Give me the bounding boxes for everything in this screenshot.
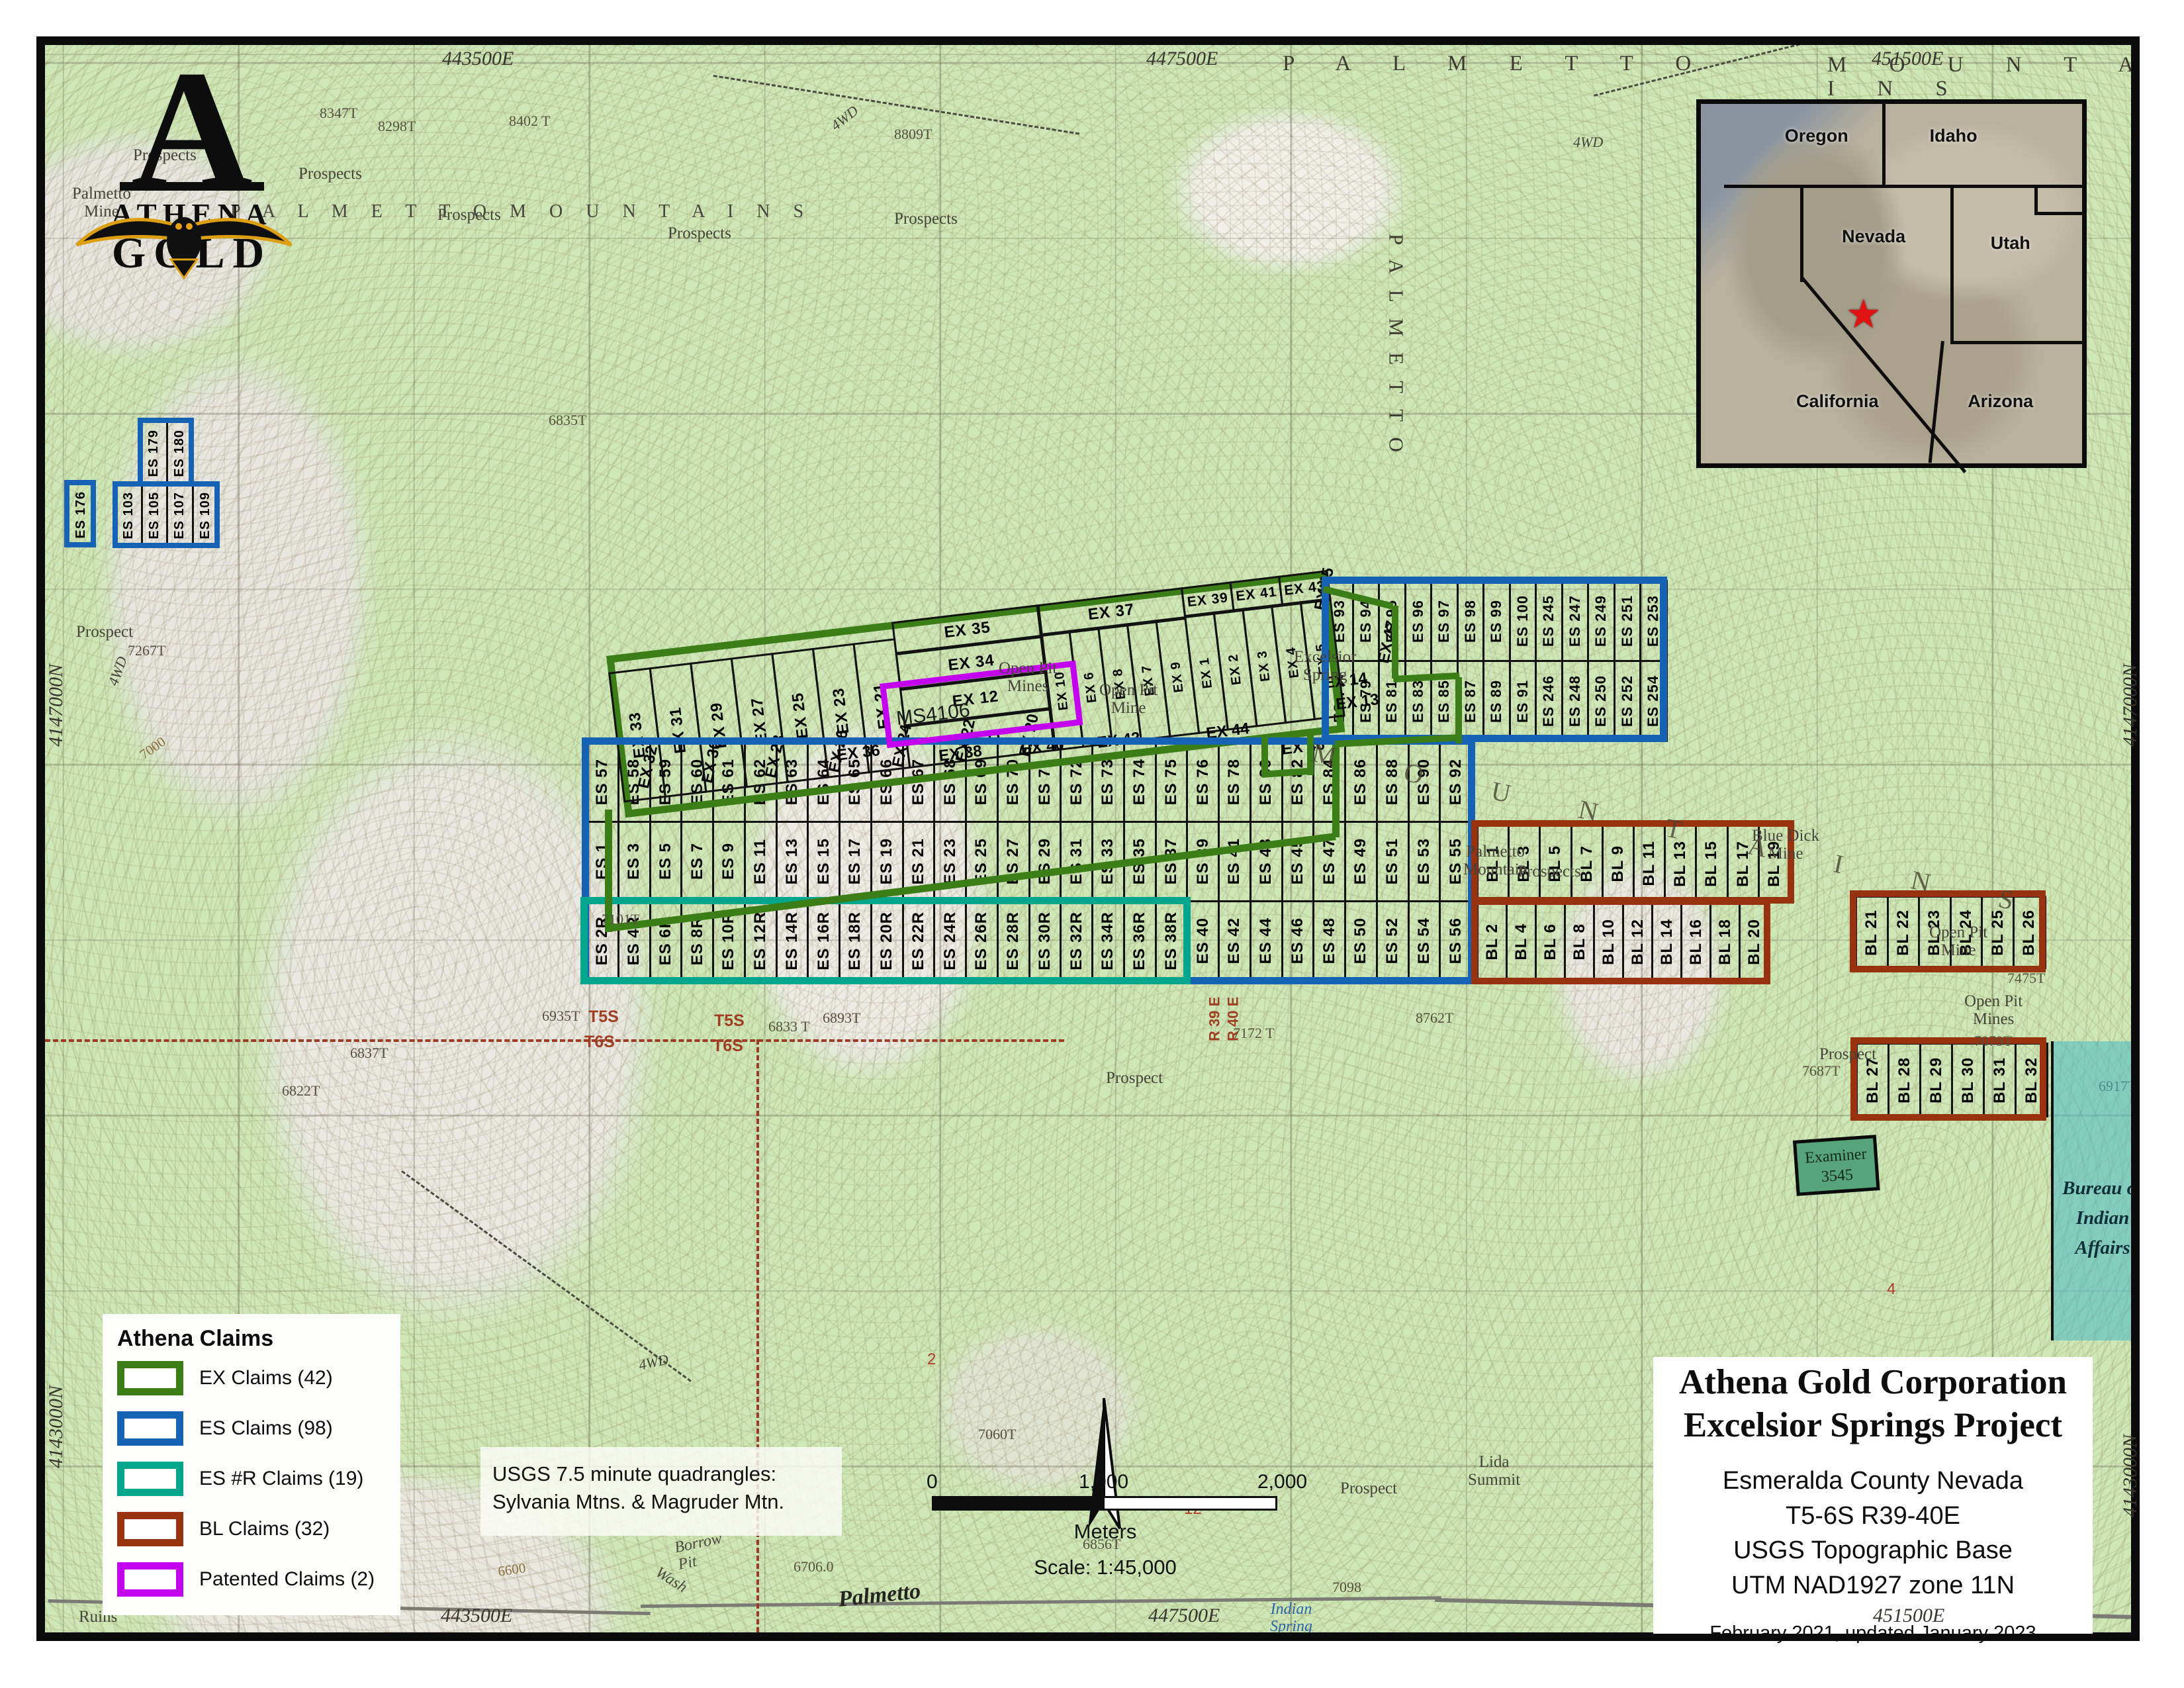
inset-state-california: California [1796, 391, 1879, 412]
scale-tick: 2,000 [1257, 1471, 1307, 1493]
claim-label: ES 94 [1357, 600, 1375, 643]
claim-cell-es-36r: ES 36R [1123, 900, 1157, 982]
inset-state-oregon: Oregon [1785, 126, 1848, 146]
claim-cell-es-42: ES 42 [1218, 900, 1251, 982]
claim-label: ES 247 [1567, 595, 1584, 647]
claim-label: ES 21 [909, 838, 928, 884]
claim-cell-es-109: ES 109 [192, 484, 220, 547]
claim-cell-es-22r: ES 22R [902, 900, 936, 982]
claim-cell-es-10r: ES 10R [712, 900, 746, 982]
claim-label: ES 44 [1257, 917, 1275, 964]
claim-label: ES 43 [1257, 838, 1275, 884]
legend-item-bl-claims-32-: BL Claims (32) [117, 1512, 400, 1546]
company-name: Athena Gold Corporation [1653, 1361, 2093, 1404]
claim-cell-es-57: ES 57 [586, 741, 619, 823]
claim-label: ES 91 [1514, 680, 1531, 723]
claim-cell-bl-8: BL 8 [1564, 902, 1595, 982]
claim-label: ES 57 [593, 759, 612, 805]
claim-label: ES 50 [1351, 917, 1370, 964]
claim-cell-es-33: ES 33 [1091, 821, 1125, 902]
claim-label: EX 1 [1197, 656, 1216, 689]
claim-label: ES 29 [1036, 838, 1054, 884]
bia-label: Bureau of Indian Affairs [2054, 1174, 2140, 1263]
claim-label: ES 37 [1162, 838, 1181, 884]
claim-cell-es-27: ES 27 [997, 821, 1030, 902]
claim-cell-es-13: ES 13 [776, 821, 809, 902]
scale-tick: 1,000 [1079, 1471, 1128, 1493]
inset-state-nevada: Nevada [1842, 226, 1905, 247]
map-label-7172-t: 7172 T [1233, 1025, 1275, 1041]
claim-label: ES 250 [1592, 675, 1610, 727]
claim-cell-bl-6: BL 6 [1535, 902, 1566, 982]
claim-label: ES 53 [1415, 838, 1433, 884]
claim-label: ES 179 [146, 430, 161, 477]
claim-label: ES 1 [593, 843, 612, 880]
claim-cell-es-3: ES 3 [617, 821, 651, 902]
claim-cell-es-1: ES 1 [586, 821, 619, 902]
claim-label: ES 22R [909, 912, 928, 970]
map-label-t5s: T5S [588, 1008, 619, 1026]
claim-label: BL 25 [1989, 910, 2007, 956]
claim-cell-es-83: ES 83 [1404, 660, 1433, 742]
claim-cell-es-18r: ES 18R [839, 900, 872, 982]
claim-label: ES 76 [1194, 759, 1212, 805]
claim-cell-es-49: ES 49 [1344, 821, 1378, 902]
claim-label: BL 2 [1483, 923, 1502, 961]
map-label-borrow-pit: Borrow Pit [673, 1530, 727, 1574]
state-border [1882, 104, 1886, 187]
claim-label: EX 3 [1255, 649, 1273, 682]
claim-label: ES 13 [783, 838, 801, 884]
claim-label: ES 27 [1004, 838, 1023, 884]
claim-label: ES 248 [1567, 675, 1584, 727]
map-label-7687t: 7687T [1802, 1063, 1840, 1079]
claim-cell-es-50: ES 50 [1344, 900, 1378, 982]
claim-label: ES 45 [1289, 838, 1307, 884]
claim-label: ES 38R [1162, 912, 1181, 970]
claim-cell-es-9: ES 9 [712, 821, 746, 902]
claim-cell-es-179: ES 179 [140, 421, 168, 486]
claim-label: ES 16R [815, 912, 833, 970]
claim-label: BL 10 [1600, 919, 1618, 965]
claim-cell-es-103: ES 103 [115, 484, 143, 547]
claim-cell-es-7: ES 7 [680, 821, 714, 902]
claim-label: ES 85 [1435, 680, 1453, 723]
legend-label: Patented Claims (2) [199, 1568, 375, 1591]
scale-tick-labels: 01,0002,000 [913, 1471, 1297, 1496]
claim-label: EX 9 [1168, 661, 1187, 694]
owl-icon [71, 193, 310, 279]
claim-cell-bl-20: BL 20 [1739, 902, 1770, 982]
claim-label: ES 18R [846, 912, 864, 970]
map-label-7079t: 7079T [1974, 1033, 2012, 1049]
claim-cell-es-254: ES 254 [1639, 660, 1668, 742]
map-label-open-pit-mine: Open Pit Mine [1099, 681, 1158, 717]
claim-label: ES 46 [1289, 917, 1307, 964]
claim-label: BL 14 [1658, 919, 1676, 965]
claim-label: ES 245 [1540, 595, 1557, 647]
claim-cell-es-38r: ES 38R [1155, 900, 1189, 982]
map-label-4wd: 4WD [105, 655, 130, 688]
inset-state-utah: Utah [1991, 233, 2030, 254]
claim-cell-bl-32: BL 32 [2015, 1043, 2048, 1117]
claim-label: ES 254 [1645, 675, 1662, 727]
claim-label: ES 56 [1447, 917, 1465, 964]
claim-cell-es-248: ES 248 [1561, 660, 1590, 742]
map-label-6935t: 6935T [542, 1008, 580, 1024]
inset-state-arizona: Arizona [1968, 391, 2033, 412]
claim-label: ES 55 [1447, 838, 1465, 884]
map-label-7475t: 7475T [2007, 970, 2045, 986]
legend-swatch [117, 1462, 183, 1496]
claim-cell-es-176: ES 176 [67, 483, 95, 547]
claim-label: EX 31 [666, 706, 690, 754]
claim-label: ES 34R [1099, 912, 1117, 970]
legend-item-es-r-claims-19-: ES #R Claims (19) [117, 1462, 400, 1496]
map-label-6600: 6600 [497, 1560, 527, 1579]
claim-label: ES 75 [1162, 759, 1181, 805]
claim-cell-es-21: ES 21 [902, 821, 936, 902]
map-label-8809t: 8809T [894, 126, 932, 142]
claim-cell-es-15: ES 15 [807, 821, 841, 902]
claim-label: ES 81 [1383, 680, 1400, 723]
claim-cell-es-32r: ES 32R [1060, 900, 1093, 982]
claim-label: ES 249 [1592, 595, 1610, 647]
claim-label: ES 48 [1320, 917, 1339, 964]
claim-cell-es-12r: ES 12R [744, 900, 778, 982]
claim-label: ES 42 [1225, 917, 1244, 964]
claim-label: ES 97 [1435, 600, 1453, 643]
claim-label: BL 18 [1716, 919, 1735, 965]
map-label-open-pit-mine: Open Pit Mine [1929, 923, 1987, 959]
claim-label: ES 14R [783, 912, 801, 970]
claim-label: ES 10R [719, 912, 738, 970]
claim-label: ES 99 [1488, 600, 1505, 643]
claim-cell-es-5: ES 5 [649, 821, 683, 902]
map-label-open-pit-mines: Open Pit Mines [1964, 992, 2023, 1028]
claim-cell-es-91: ES 91 [1509, 660, 1537, 742]
scale-bar: 01,0002,000 Meters Scale: 1:45,000 [913, 1471, 1297, 1579]
claim-cell-bl-28: BL 28 [1888, 1043, 1921, 1117]
edge-coord-bottom-0: 443500E [441, 1605, 512, 1627]
logo-letter: A [99, 61, 285, 199]
map-label-6822t: 6822T [282, 1083, 320, 1099]
map-label-t6s: T6S [584, 1033, 615, 1051]
claim-cell-es-31: ES 31 [1060, 821, 1093, 902]
scale-ratio: Scale: 1:45,000 [913, 1556, 1297, 1579]
state-border [2034, 185, 2038, 213]
claim-label: ES 28R [1004, 912, 1023, 970]
claim-label: ES 176 [73, 491, 89, 539]
claim-label: ES 39 [1194, 838, 1212, 884]
base-line: USGS Topographic Base [1653, 1533, 2093, 1568]
inset-location-map: Oregon Idaho Nevada Utah California Ariz… [1696, 99, 2087, 468]
claim-cell-es-16r: ES 16R [807, 900, 841, 982]
claim-cell-es-28r: ES 28R [997, 900, 1030, 982]
legend-label: EX Claims (42) [199, 1367, 333, 1389]
claim-label: ES 30R [1036, 912, 1054, 970]
claim-cell-es-46: ES 46 [1281, 900, 1315, 982]
map-label-6893t: 6893T [823, 1010, 860, 1026]
map-label-7267t: 7267T [128, 643, 165, 659]
map-label-palmetto: Palmetto [837, 1579, 922, 1613]
map-label-8298t: 8298T [378, 118, 416, 134]
bia-area: Bureau of Indian Affairs [2051, 1041, 2140, 1340]
legend-swatch [117, 1562, 183, 1597]
claim-cell-es-26r: ES 26R [965, 900, 999, 982]
usgs-note-line1: USGS 7.5 minute quadrangles: [492, 1460, 842, 1488]
claim-cell-es-6r: ES 6R [649, 900, 683, 982]
claim-cell-es-97: ES 97 [1430, 580, 1459, 662]
project-location-star: ★ [1846, 295, 1882, 334]
claim-label: ES 73 [1099, 759, 1117, 805]
claim-cell-es-20r: ES 20R [870, 900, 904, 982]
claim-cell-es-37: ES 37 [1155, 821, 1189, 902]
claim-cell-es-29: ES 29 [1028, 821, 1062, 902]
claim-label: ES 40 [1194, 917, 1212, 964]
claim-label: BL 6 [1541, 923, 1560, 961]
claim-label: ES 96 [1410, 600, 1427, 643]
claim-label: ES 9 [719, 843, 738, 880]
edge-coord-left-1: 4143000N [45, 1385, 68, 1468]
claim-cell-es-53: ES 53 [1408, 821, 1441, 902]
project-name: Excelsior Springs Project [1653, 1404, 2093, 1447]
claim-cell-es-253: ES 253 [1639, 580, 1668, 662]
edge-coord-right-1: 4143000N [2119, 1434, 2142, 1517]
claim-label: BL 30 [1959, 1057, 1978, 1103]
map-label-4: 4 [1887, 1281, 1895, 1298]
claim-cell-es-100: ES 100 [1509, 580, 1537, 662]
claim-label: BL 31 [1991, 1057, 2009, 1103]
claim-cell-es-56: ES 56 [1439, 900, 1473, 982]
state-border [1950, 185, 1954, 343]
map-label-8347t: 8347T [320, 105, 357, 121]
state-border [2034, 212, 2082, 215]
claim-label: EX 2 [1226, 653, 1244, 686]
claim-cell-es-251: ES 251 [1614, 580, 1642, 662]
map-label-prospect: Prospect [1340, 1479, 1397, 1497]
township-line: T5-6S R39-40E [1653, 1499, 2093, 1533]
map-label-indian-spring: Indian Spring [1270, 1601, 1312, 1636]
state-border [1724, 185, 2082, 188]
claim-label: ES 8R [688, 916, 707, 965]
map-label-6706-0: 6706.0 [794, 1559, 834, 1575]
claim-cell-es-14r: ES 14R [776, 900, 809, 982]
claim-cell-es-252: ES 252 [1614, 660, 1642, 742]
patented-claim-label: MS4106 [895, 699, 971, 730]
legend-swatch [117, 1512, 183, 1546]
claim-label: EX 41 [1235, 584, 1278, 604]
patented-claim-examiner: Examiner 3545 [1793, 1135, 1880, 1196]
claim-cell-es-249: ES 249 [1587, 580, 1615, 662]
claim-cell-es-180: ES 180 [166, 421, 194, 486]
claim-cell-es-245: ES 245 [1535, 580, 1563, 662]
state-border [1950, 341, 2082, 344]
claim-label: ES 51 [1383, 838, 1402, 884]
claim-label: BL 20 [1745, 919, 1764, 965]
county-line: Esmeralda County Nevada [1653, 1464, 2093, 1498]
claim-cell-bl-4: BL 4 [1506, 902, 1537, 982]
claim-cell-bl-30: BL 30 [1951, 1043, 1985, 1117]
legend-swatch [117, 1361, 183, 1395]
legend-item-patented-claims-2-: Patented Claims (2) [117, 1562, 400, 1597]
claim-label: EX 39 [1187, 590, 1230, 610]
claim-cell-es-44: ES 44 [1250, 900, 1283, 982]
claim-cell-es-85: ES 85 [1430, 660, 1459, 742]
usgs-note-line2: Sylvania Mtns. & Magruder Mtn. [492, 1488, 842, 1516]
claim-label: ES 78 [1225, 759, 1244, 805]
map-label-palmetto-mountain: Palmetto Mountain [1463, 843, 1527, 878]
map-label-2: 2 [927, 1351, 936, 1368]
claim-cell-es-76: ES 76 [1186, 741, 1220, 823]
claim-label: EX 37 [1087, 600, 1135, 624]
map-label-lida-summit: Lida Summit [1468, 1453, 1520, 1489]
map-label-4wd: 4WD [828, 103, 861, 134]
claim-cell-es-250: ES 250 [1587, 660, 1615, 742]
claim-cell-es-98: ES 98 [1457, 580, 1485, 662]
claim-label: ES 107 [172, 492, 187, 539]
claim-label: BL 16 [1687, 919, 1706, 965]
claim-cell-es-48: ES 48 [1312, 900, 1346, 982]
map-label-prospect: Prospect [1819, 1045, 1876, 1063]
scale-bar-graphic [932, 1496, 1277, 1511]
map-label-7101t: 7101T [602, 912, 639, 927]
claim-label: ES 20R [878, 912, 896, 970]
claim-label: BL 12 [1629, 919, 1647, 965]
legend-item-es-claims-98-: ES Claims (98) [117, 1411, 400, 1446]
claim-label: ES 103 [121, 492, 136, 539]
legend-swatch [117, 1411, 183, 1446]
claim-label: BL 8 [1570, 923, 1589, 961]
claim-label: ES 25 [972, 838, 991, 884]
claim-label: BL 9 [1609, 845, 1627, 882]
claim-label: ES 47 [1320, 838, 1339, 884]
claim-cell-es-40: ES 40 [1186, 900, 1220, 982]
legend-header: Athena Claims [117, 1326, 400, 1352]
map-label-8402-t: 8402 T [509, 113, 551, 129]
map-label-prospects: Prospects [894, 210, 958, 228]
claim-cell-es-87: ES 87 [1457, 660, 1485, 742]
claim-cell-bl-16: BL 16 [1680, 902, 1711, 982]
edge-coord-left-0: 4147000N [45, 664, 68, 747]
claim-label: ES 32R [1068, 912, 1086, 970]
claim-label: ES 87 [1462, 680, 1479, 723]
map-label-prospect: Prospect [1106, 1069, 1163, 1087]
claim-cell-bl-12: BL 12 [1622, 902, 1653, 982]
inset-state-idaho: Idaho [1930, 126, 1978, 146]
claim-cell-es-17: ES 17 [839, 821, 872, 902]
title-block: Athena Gold Corporation Excelsior Spring… [1653, 1357, 2093, 1634]
claim-cell-bl-22: BL 22 [1887, 896, 1921, 969]
legend-label: BL Claims (32) [199, 1518, 330, 1540]
claim-cell-es-35: ES 35 [1123, 821, 1157, 902]
map-label-prospects: Prospects [437, 206, 501, 224]
claim-label: ES 49 [1351, 838, 1370, 884]
claim-cell-es-81: ES 81 [1378, 660, 1406, 742]
map-label-6835t: 6835T [549, 412, 586, 428]
claim-cell-es-51: ES 51 [1376, 821, 1410, 902]
claim-label: ES 80 [1257, 759, 1275, 805]
claim-label: ES 72 [1068, 759, 1086, 805]
edge-coord-bottom-1: 447500E [1148, 1605, 1220, 1627]
claim-cell-bl-31: BL 31 [1983, 1043, 2017, 1117]
claim-cell-bl-18: BL 18 [1709, 902, 1741, 982]
claim-cell-es-39: ES 39 [1186, 821, 1220, 902]
claim-label: ES 23 [941, 838, 960, 884]
claim-cell-es-54: ES 54 [1408, 900, 1441, 982]
map-label-t5s: T5S [714, 1012, 745, 1030]
claim-label: ES 54 [1415, 917, 1433, 964]
claim-label: ES 253 [1645, 595, 1662, 647]
map-label-8762t: 8762T [1416, 1010, 1453, 1026]
claim-label: EX 27 [748, 696, 772, 745]
claim-label: ES 5 [657, 843, 675, 880]
scale-tick: 0 [927, 1471, 938, 1493]
claim-label: ES 246 [1540, 675, 1557, 727]
legend-label: ES Claims (98) [199, 1417, 333, 1440]
map-label-4wd: 4WD [637, 1352, 670, 1374]
edge-coord-right-0: 4147000N [2119, 664, 2142, 747]
edge-coord-top-0: 443500E [442, 48, 514, 70]
claim-label: ES 89 [1488, 680, 1505, 723]
claim-cell-es-11: ES 11 [744, 821, 778, 902]
claim-cell-bl-2: BL 2 [1477, 902, 1508, 982]
claim-cell-bl-21: BL 21 [1855, 896, 1889, 969]
claim-label: ES 41 [1225, 838, 1244, 884]
claim-cell-es-45: ES 45 [1281, 821, 1315, 902]
claim-label: ES 6R [657, 916, 675, 965]
map-label-7060t: 7060T [978, 1427, 1016, 1442]
map-label-6833-t: 6833 T [768, 1019, 810, 1035]
edge-coord-top-1: 447500E [1146, 48, 1218, 70]
claim-cell-es-8r: ES 8R [680, 900, 714, 982]
edge-coord-top-2: 451500E [1872, 48, 1943, 70]
claim-cell-es-43: ES 43 [1250, 821, 1283, 902]
claim-cell-es-96: ES 96 [1404, 580, 1433, 662]
scale-unit: Meters [913, 1520, 1297, 1544]
claim-cell-es-99: ES 99 [1482, 580, 1511, 662]
usgs-note: USGS 7.5 minute quadrangles: Sylvania Mt… [480, 1447, 842, 1536]
claim-label: ES 7 [688, 843, 707, 880]
claim-label: ES 52 [1383, 917, 1402, 964]
claim-label: ES 35 [1130, 838, 1149, 884]
datum-line: UTM NAD1927 zone 11N [1653, 1568, 2093, 1603]
claim-label: ES 105 [147, 492, 162, 539]
map-label-6837t: 6837T [350, 1045, 388, 1061]
claim-label: BL 32 [2023, 1057, 2041, 1103]
claim-label: BL 27 [1864, 1057, 1882, 1103]
claim-cell-es-30r: ES 30R [1028, 900, 1062, 982]
claim-cell-es-89: ES 89 [1482, 660, 1511, 742]
claim-label: BL 13 [1671, 841, 1690, 887]
edge-coord-bottom-2: 451500E [1873, 1605, 1944, 1627]
claim-label: BL 28 [1895, 1057, 1914, 1103]
claim-cell-es-25: ES 25 [965, 821, 999, 902]
map-label-r-39-e: R 39 E [1206, 997, 1222, 1041]
map-label-prospect: Prospect [76, 623, 133, 641]
claim-label: BL 11 [1640, 841, 1659, 886]
map-label-p-a-l-m-e-t-t-o-m-o-u-n-t-a-i-n-s: P A L M E T T O M O U N T A I N S [230, 202, 813, 222]
claim-cell-es-19: ES 19 [870, 821, 904, 902]
legend-label: ES #R Claims (19) [199, 1468, 363, 1490]
claim-label: ES 82 [1289, 759, 1307, 805]
legend-panel: Athena Claims EX Claims (42)ES Claims (9… [103, 1314, 400, 1615]
claim-cell-bl-10: BL 10 [1593, 902, 1624, 982]
map-label-prospects: Prospects [668, 224, 731, 242]
claim-label: BL 21 [1862, 910, 1881, 956]
patented-claim-label: Examiner 3545 [1797, 1144, 1876, 1189]
map-label-p-a-l-m-e-t-t-o: P A L M E T T O [1283, 52, 1709, 76]
